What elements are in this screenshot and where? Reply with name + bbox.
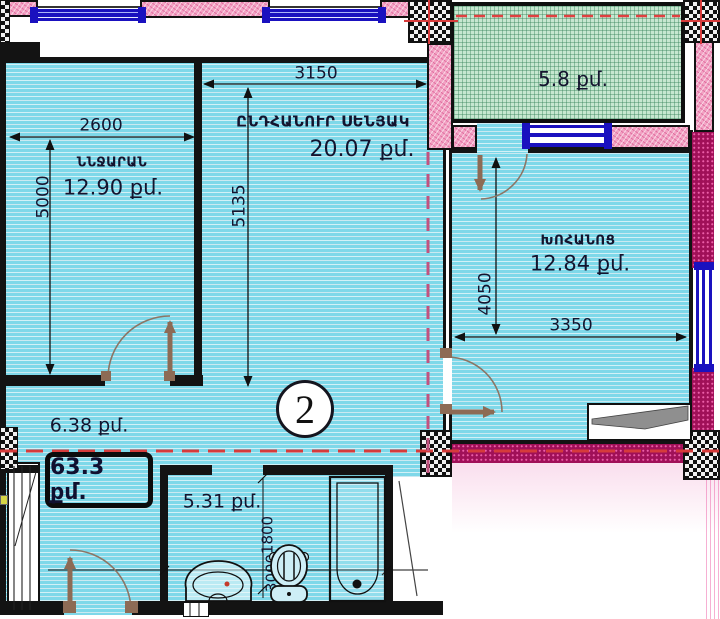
- dim-living-width-label: 3150: [294, 66, 337, 83]
- bathroom-top-wall-b: [263, 465, 393, 475]
- bedroom-name-label: ՆՆՋԱՐԱՆ: [77, 157, 147, 170]
- window-cap: [604, 123, 612, 149]
- dim-living-depth-label: 5135: [232, 184, 249, 227]
- pier-balcony-door-left: [452, 125, 477, 149]
- bedroom-bottom-wall-a: [0, 375, 105, 386]
- kitchen-window: [696, 266, 712, 368]
- column-mid-left: [0, 427, 18, 470]
- bottom-wall-b: [132, 601, 443, 615]
- total-area-label: 63.3 քմ.: [50, 455, 148, 505]
- column-mid-center: [420, 430, 452, 477]
- dim-bedroom-width-label: 2600: [79, 118, 122, 135]
- total-area-badge: 63.3 քմ.: [45, 452, 153, 508]
- bedroom-bottom-wall-b: [170, 375, 203, 386]
- pier-top-2: [140, 0, 270, 18]
- living-name-label: ԸՆԴՀԱՆՈՒՐ ՍԵՆՅԱԿ: [236, 115, 410, 130]
- kitchen-bottom-wall-band: [443, 444, 720, 463]
- kitchen-area-label: 12.84 քմ.: [530, 254, 630, 275]
- bedroom-area-label: 12.90 քմ.: [63, 178, 163, 199]
- hallway-area-label: 6.38 քմ.: [50, 417, 129, 436]
- right-wall-upper: [692, 132, 714, 268]
- dim-bedroom-depth-label: 5000: [36, 175, 53, 218]
- unit-number-badge: 2: [276, 380, 334, 438]
- bottom-sill: [183, 602, 209, 617]
- bottom-wall-a: [0, 601, 64, 615]
- window-cap: [522, 123, 530, 149]
- unit-number-label: 2: [295, 386, 315, 433]
- column-top-left: [0, 0, 10, 43]
- bathroom-left-wall: [160, 465, 168, 615]
- window-cap: [694, 364, 714, 372]
- column-top-center: [408, 0, 452, 43]
- window-cap: [262, 7, 270, 23]
- dim-bathroom-depth-label: 1800: [261, 516, 276, 554]
- floor-plan-canvas: ՆՆՋԱՐԱՆ 12.90 քմ. ԸՆԴՀԱՆՈՒՐ ՍԵՆՅԱԿ 20.07…: [0, 0, 720, 619]
- window-cap: [30, 7, 38, 23]
- living-kitchen-divider-a: [443, 150, 452, 355]
- balcony-doorway-fill: [477, 123, 528, 153]
- column-top-right: [683, 0, 720, 43]
- lower-balcony-edge-hatch: [706, 470, 720, 619]
- balcony-window: [528, 125, 606, 147]
- living-area-label: 20.07 քմ.: [310, 139, 415, 161]
- column-mid-right: [683, 430, 720, 480]
- balcony-area-label: 5.8 քմ.: [538, 69, 608, 89]
- left-wall: [0, 42, 6, 615]
- window-cap: [694, 262, 714, 270]
- bathroom-area-label: 5.31 քմ.: [183, 493, 262, 512]
- window-cap: [138, 7, 146, 23]
- living-window: [268, 9, 380, 21]
- dim-kitchen-depth-label: 4050: [478, 272, 495, 315]
- utility-marker: [0, 495, 8, 505]
- shaft-white-area: [391, 477, 443, 603]
- pier-balcony-left-column: [427, 43, 453, 150]
- lower-balcony-washed-area: [452, 463, 720, 619]
- bedroom-window: [36, 9, 140, 21]
- window-cap: [378, 7, 386, 23]
- bathroom-right-wall: [385, 465, 393, 615]
- bedroom-living-partition: [194, 57, 202, 383]
- balcony: [450, 2, 685, 123]
- entry-closet: [7, 462, 40, 612]
- kitchen-name-label: ԽՈՀԱՆՈՑ: [540, 234, 615, 248]
- pier-right-column-top: [694, 40, 714, 132]
- dim-bathroom-width-label: 3000: [265, 554, 280, 592]
- pier-balcony-window-right: [606, 125, 690, 149]
- dim-kitchen-width-label: 3350: [549, 318, 592, 335]
- top-wall: [0, 57, 447, 63]
